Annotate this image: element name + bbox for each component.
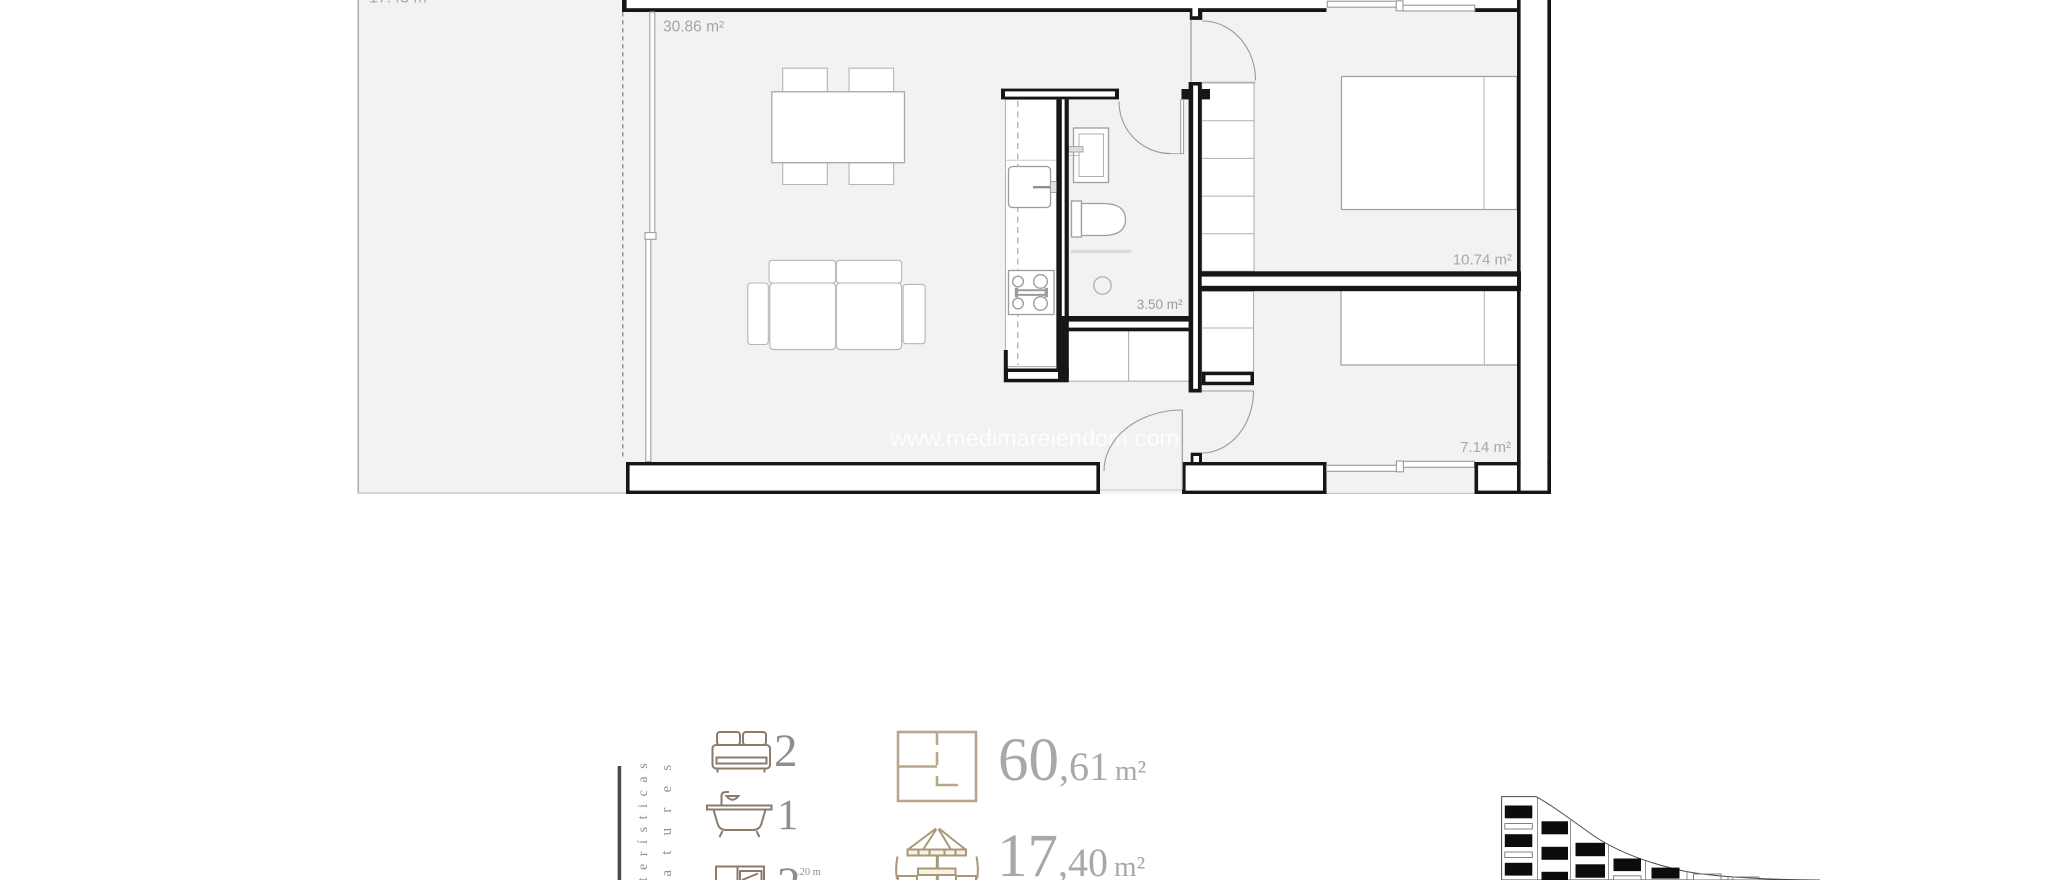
svg-text:7.14 m²: 7.14 m² xyxy=(1460,439,1511,456)
svg-text:2: 2 xyxy=(774,725,798,777)
svg-text:.20 m: .20 m xyxy=(797,867,821,878)
svg-text:60,61m²: 60,61m² xyxy=(998,727,1147,794)
svg-text:www.medimareiendomcom: www.medimareiendomcom xyxy=(889,425,1179,451)
svg-text:30.86 m²: 30.86 m² xyxy=(663,19,724,36)
svg-text:características: características xyxy=(636,756,651,880)
svg-text:17.43 m²: 17.43 m² xyxy=(369,0,433,7)
svg-text:17,40m²: 17,40m² xyxy=(997,823,1146,880)
svg-text:10.74 m²: 10.74 m² xyxy=(1453,252,1512,269)
svg-text:3.50 m²: 3.50 m² xyxy=(1137,297,1183,312)
svg-text:1: 1 xyxy=(777,792,799,839)
svg-text:Features: Features xyxy=(659,750,675,880)
